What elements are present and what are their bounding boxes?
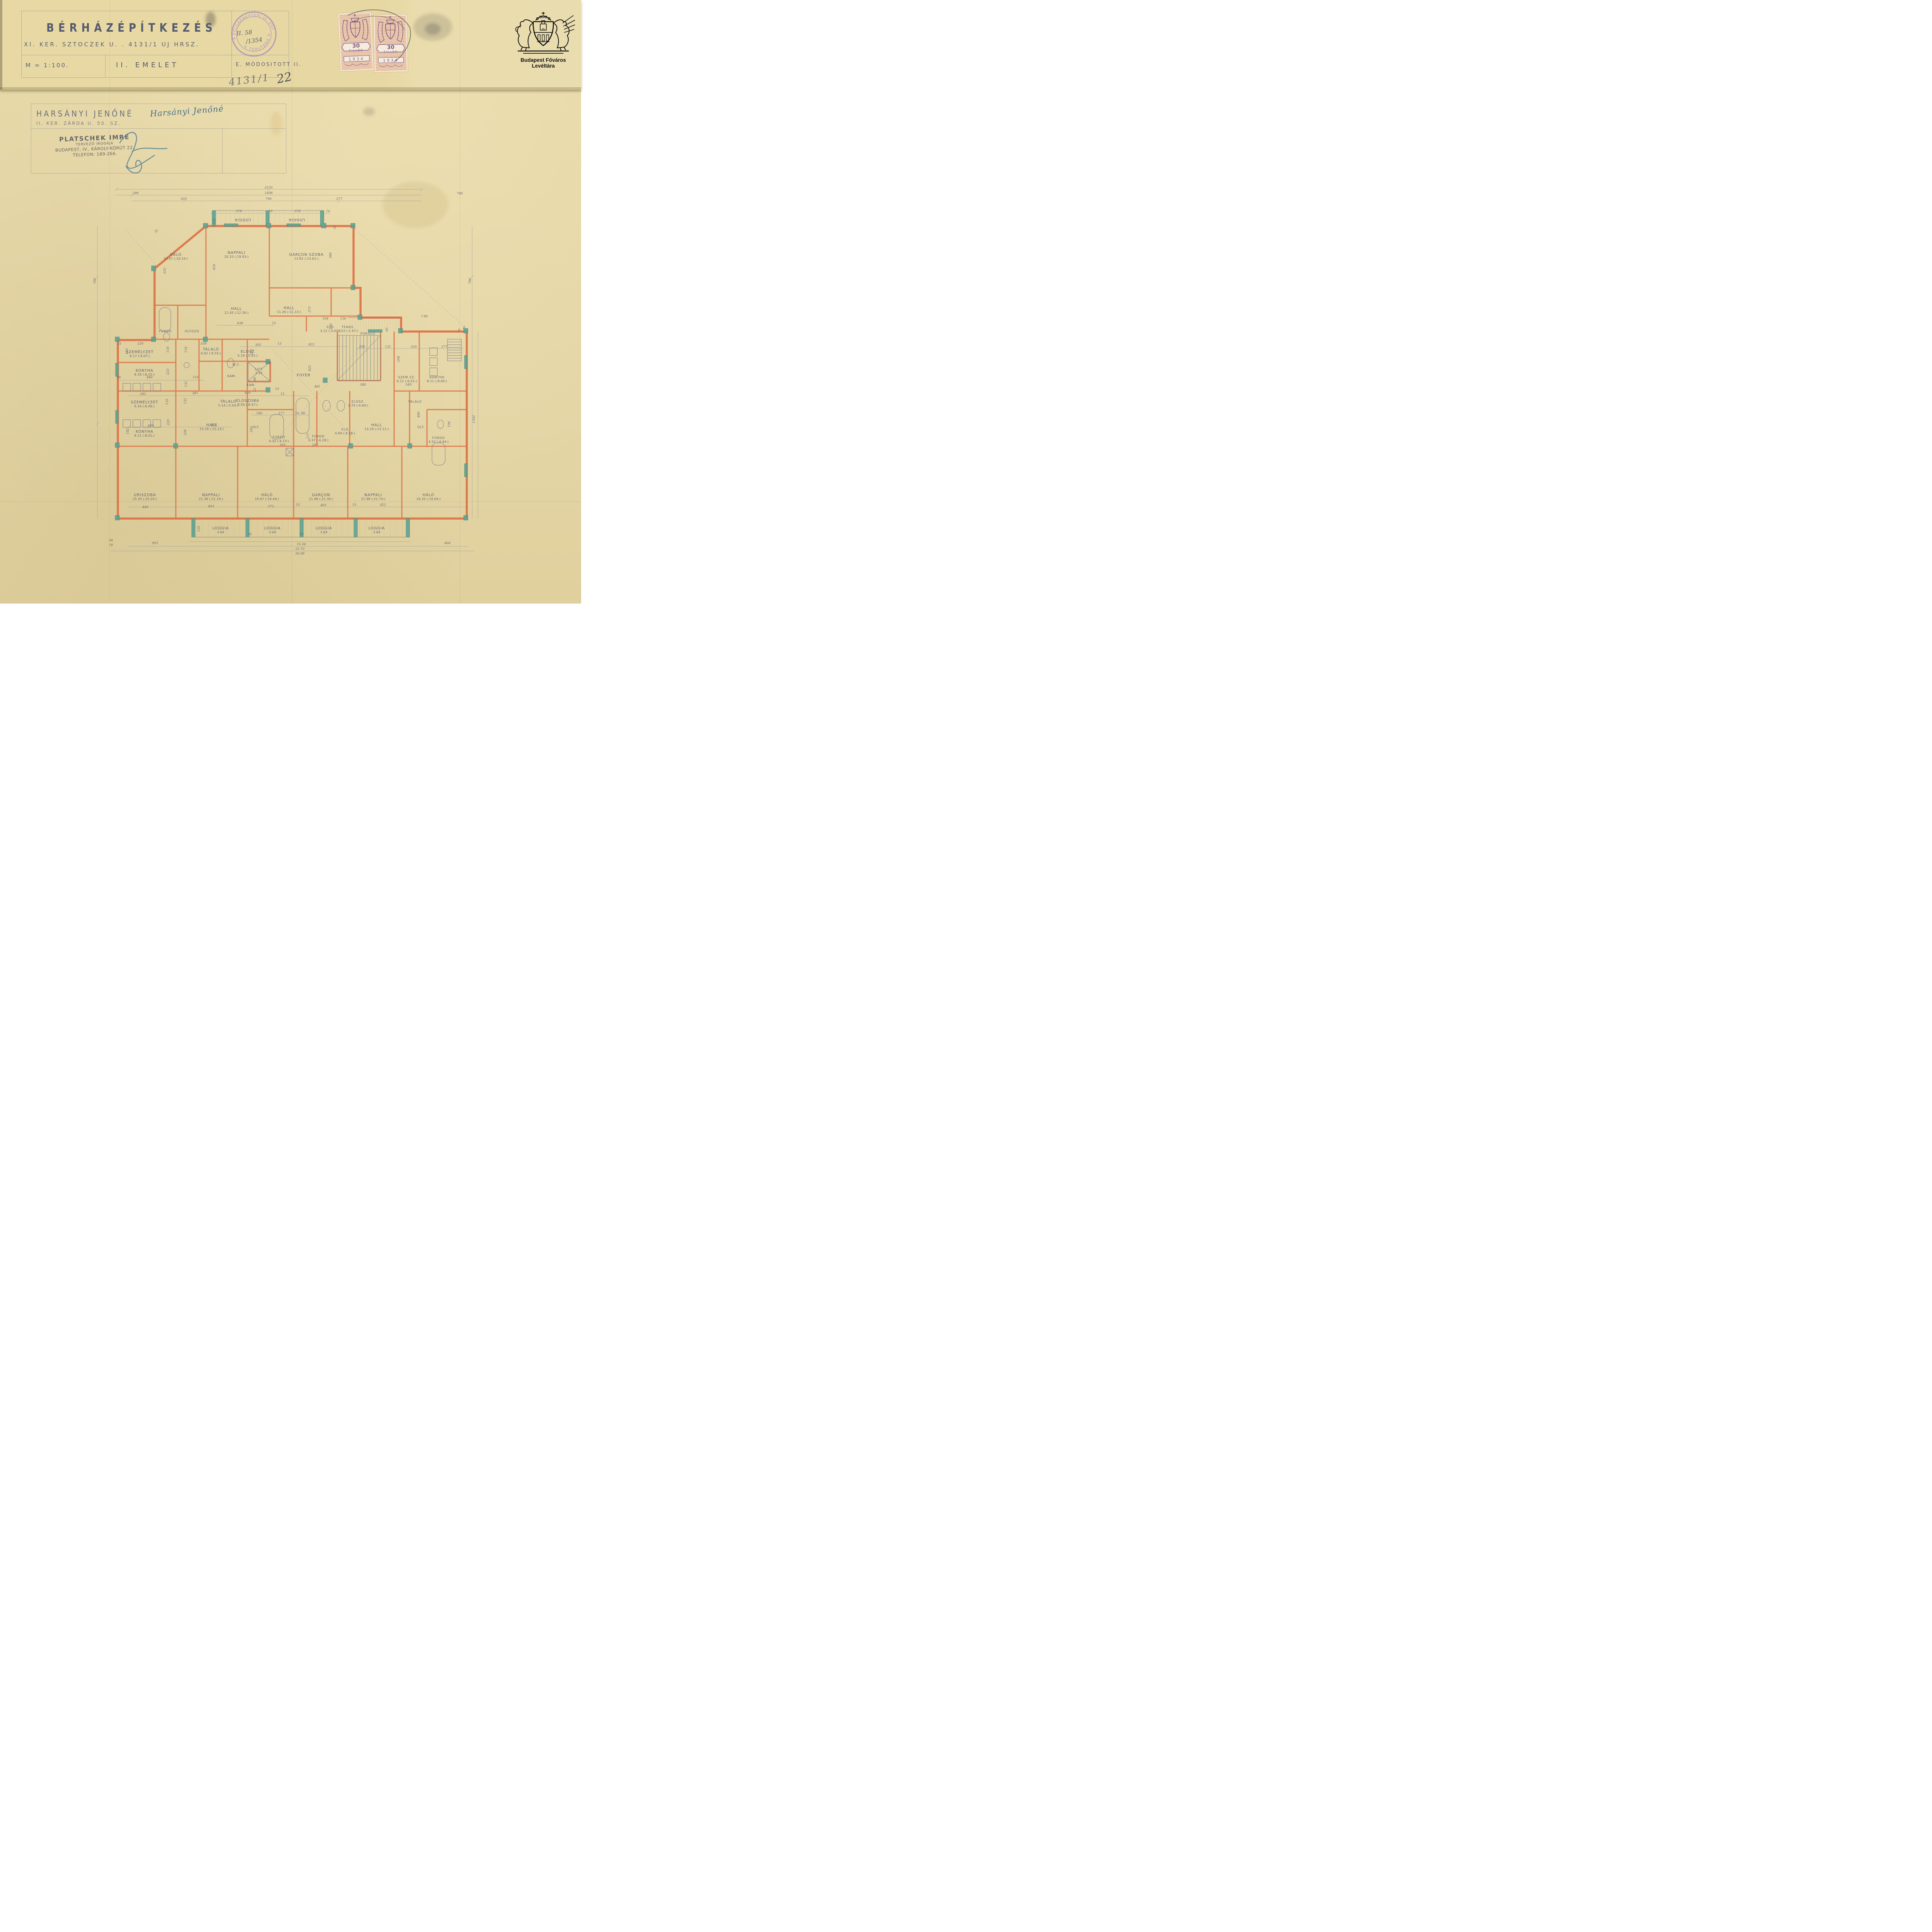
dimension-value: 26.08 [295, 551, 304, 555]
floor-plan: 2570149879628642527778637416374161353131… [93, 178, 498, 568]
dimension-value: 329 [137, 342, 144, 345]
dimension-value: 98 [301, 411, 305, 415]
dimension-value: 422 [379, 503, 386, 507]
dimension-value: 786 [457, 191, 463, 195]
dimension-value: 196 [447, 421, 451, 427]
dimension-value: 422 [308, 365, 311, 372]
document-title: BÉRHÁZÉPÍTKEZÉS [46, 22, 217, 35]
room-label: HÁLÓ19.67 (:19.49:) [255, 493, 279, 501]
dimension-value: 13 [277, 342, 282, 345]
room-label: KONYHA8.11 (:8.01:) [134, 430, 155, 437]
dimension-value: 16 [326, 209, 330, 213]
dimension-value: 229 [166, 419, 170, 426]
dimension-value: 372 [268, 504, 274, 508]
room-label: ELŐ3.12 (:3.05:) [320, 325, 340, 333]
dimension-value: 22 [253, 388, 257, 393]
room-label: SZEMÉLYZET6.16 (:6.06:) [131, 400, 158, 408]
room-label: FÜRDŐ [159, 330, 172, 333]
room-label: FÜRDŐ4.53 (:4.44:) [429, 436, 449, 444]
dimension-value: 440 [147, 423, 154, 427]
room-label: TÁLALÓ [408, 400, 422, 403]
dimension-value: 135 [165, 399, 169, 405]
dimension-value: 165 [279, 443, 286, 447]
owner-address: II. KER. ZÁRDA U. 50. SZ. [36, 121, 121, 126]
site-address: XI. KER. SZTOCZEK U. . 4131/1 UJ HRSZ. [24, 41, 200, 48]
dimension-value: 31 [333, 225, 337, 230]
dimension-value: 336 [183, 429, 187, 435]
dimension-value: 425 [180, 197, 187, 201]
dimension-value: 15 [352, 503, 357, 507]
dimension-value: β [458, 328, 460, 332]
dimension-value: 381 [192, 391, 198, 395]
walls-outer [118, 226, 467, 519]
smudge [363, 107, 375, 116]
room-label: HÁLÓ19.20 (:19.04:) [417, 493, 441, 501]
dimension-value: 16 [295, 411, 299, 415]
room-label: KAM. [247, 383, 256, 387]
archive-logo-caption: Budapest Főváros Levéltára [509, 57, 577, 69]
room-label: KONYHA8.11 (:8.00:) [427, 376, 447, 383]
dimension-value: 1392 [472, 415, 476, 423]
ownerblock-border [31, 104, 31, 173]
dimension-value: 493 [207, 504, 214, 508]
room-label: HALL11.26 (:11.13:) [277, 306, 301, 314]
dimension-value: 16 [299, 532, 304, 536]
dimension-value: 129 [197, 526, 201, 532]
dimension-value: 205 [410, 345, 417, 349]
titleblock-divider [105, 55, 105, 77]
dimension-value: 466 [444, 541, 451, 545]
dimension-value: 135 [212, 218, 216, 224]
dimension-value: 118 [166, 347, 170, 353]
dimension-value: 2570 [264, 185, 273, 189]
floor-label: II. EMELET [116, 61, 179, 69]
dimension-value: 349 [405, 383, 412, 386]
scanned-plan-document: BÉRHÁZÉPÍTKEZÉS XI. KER. SZTOCZEK U. . 4… [0, 0, 584, 606]
dimension-value: 481 [314, 384, 320, 388]
dimension-value: 223 [166, 369, 170, 375]
revision-label: E. MÓDOSITOTT II. [236, 62, 302, 68]
room-label: ÖLTÖZŐ [185, 330, 199, 333]
dimension-value: 374 [294, 209, 301, 213]
room-label: TÁLALÓ6.62 (:6.55:) [201, 347, 221, 355]
dimension-value: 786 [93, 278, 97, 284]
dimension-value: 438 [236, 321, 243, 325]
dimension-value: 298 [396, 356, 400, 362]
ownerblock-border [31, 104, 286, 104]
dimension-value: 422 [308, 342, 315, 346]
room-label: FÜRDŐ4.37 (:4.28:) [308, 435, 328, 442]
dimension-value: 440 [142, 505, 149, 509]
dimension-value: 25.70 [295, 547, 304, 551]
room-label: LOGGIA [235, 218, 251, 222]
dimension-value: 16 [269, 209, 273, 213]
archive-logo [509, 10, 577, 56]
dimension-value: 15 [272, 321, 276, 325]
dimension-value: 459 [212, 264, 216, 270]
owner-name: HARSÁNYI JENŐNÉ [36, 109, 133, 119]
dimension-value: 28 [116, 375, 121, 379]
dimension-value: 135 [183, 398, 187, 404]
dimension-value: 15 [281, 392, 285, 396]
dimension-value: 131 [385, 345, 391, 349]
room-label: FÜRDŐ4.32 (:4.23:) [269, 435, 289, 443]
dimension-value: 1498 [264, 191, 272, 195]
dimension-value: 302 [255, 343, 261, 347]
room-label: NAPPALI20.10 (:19.93:) [224, 251, 249, 259]
dimension-value: 290 [359, 345, 366, 349]
room-label: LOGGIA3.64 [316, 526, 332, 534]
room-label: LOGGIA3.64 [369, 526, 385, 534]
dimension-value: 286 [132, 191, 139, 195]
room-label: SZEM.SZ.6.11 (:6.01:) [397, 376, 417, 383]
ownerblock-divider [222, 128, 223, 173]
room-label: KAM. [227, 374, 236, 378]
dimension-value: 15 [296, 503, 300, 507]
dimension-value: 95 [385, 328, 389, 332]
room-label: TÁLALÓ5.14 (:5.04:) [218, 399, 238, 407]
dimension-value: 796 [265, 197, 272, 201]
room-labels: HÁLÓ19.37 (:19.19:)NAPPALI20.10 (:19.93:… [126, 218, 449, 534]
dimension-value: 247 [311, 443, 318, 447]
room-label: ELŐSZ5.19 (:5.01:) [238, 350, 258, 357]
ink-smudge [425, 23, 440, 35]
room-label: NAPPALI21.38 (:21.19:) [199, 493, 223, 501]
scan-edge [0, 0, 2, 90]
room-label: GARÇON SZOBA23.82 (:23.62:) [289, 253, 323, 260]
room-label: FOYER [297, 373, 311, 378]
paper-sheet: BÉRHÁZÉPÍTKEZÉS XI. KER. SZTOCZEK U. . 4… [0, 0, 581, 604]
dimension-value: 118 [184, 347, 188, 353]
dimension-value: 342 [140, 392, 146, 396]
room-label: W.C. [232, 363, 240, 366]
room-label: GARÇON21.48 (:21.30:) [309, 493, 333, 501]
dimension-value: 373 [308, 306, 311, 313]
dimension-value: 480 [417, 411, 420, 418]
dimension-value: 16 [248, 532, 252, 536]
dimension-value: 136 [340, 316, 346, 320]
dimension-value: 15.36 [297, 542, 306, 546]
room-label: SZEMÉLYZET6.17 (:6.07:) [126, 350, 154, 358]
cancellation-mark [332, 4, 425, 77]
room-label: LOGGIA [289, 218, 305, 222]
scale-label: M = 1:100. [26, 62, 69, 69]
dimension-value: 177 [278, 411, 285, 415]
dimension-value: 903 [152, 541, 158, 545]
dimension-value: β [463, 325, 465, 329]
dimension-value: 31 [117, 342, 122, 345]
dimension-value: 38 [109, 538, 113, 542]
room-label: ÖLT. [417, 425, 425, 429]
walls-partitions [118, 226, 467, 519]
room-label: ÖLT. [252, 425, 260, 429]
dimension-value: 277 [336, 197, 343, 201]
owner-signature-handwritten: Harsányi Jenőné [150, 104, 224, 118]
dimension-value: 7·86 [421, 314, 428, 318]
room-label: ELŐ4.69 (:4.58:) [335, 428, 355, 435]
room-label: HALL12.45 (:12.30:) [224, 307, 249, 315]
dimension-value: 348 [360, 383, 366, 386]
dimension-value: 374 [236, 209, 242, 213]
dimension-value: 405 [320, 503, 327, 507]
dimension-value: 18 [109, 543, 113, 547]
room-label: POROLÓ [361, 332, 376, 335]
dimension-value: 86 [253, 377, 257, 381]
stamp-number-handwritten: II. 58 [236, 29, 252, 37]
room-label: HALL13.20 (:13.11:) [365, 423, 389, 431]
dimension-value: 180 [256, 411, 263, 415]
dimension-value: 15 [275, 387, 279, 391]
dimension-value: 277 [441, 345, 448, 349]
dimension-value: 131 [184, 381, 188, 387]
dimension-value: 786 [468, 278, 472, 284]
dimension-value: 509 [201, 342, 207, 345]
dimension-value: 430 [244, 391, 251, 395]
dimension-value: 155 [192, 375, 199, 379]
room-label: LOGGIA3.64 [264, 526, 281, 534]
ownerblock-border [286, 104, 286, 173]
dimension-value: 182 [126, 428, 129, 434]
room-label: LIFT2.14 [255, 367, 263, 375]
room-label: NAPPALI21.98 (:21.74:) [361, 493, 386, 501]
architect-signature [109, 128, 175, 174]
room-label: HÁLÓ19.37 (:19.19:) [164, 252, 188, 260]
stain [270, 112, 282, 135]
titleblock-border [21, 11, 22, 77]
dimension-value: 533 [163, 268, 167, 274]
room-label: URISZOBA25.55 (:25.35:) [133, 493, 157, 501]
dimension-value: 31 [153, 228, 159, 233]
room-label: KONYHA8.39 (:8.25:) [134, 369, 155, 376]
room-label: TEAKO.2.53 (:2.47:) [338, 325, 358, 333]
flap-shadow [0, 87, 581, 93]
dimension-value: 164 [322, 316, 328, 320]
dimension-value: 177 [306, 432, 310, 439]
dimension-value: 386 [328, 252, 332, 259]
room-label: ELŐSZ.4.74 (:4.64:) [348, 400, 368, 407]
room-label: ELŐSZOBA8.50 (:8.47:) [236, 399, 259, 406]
